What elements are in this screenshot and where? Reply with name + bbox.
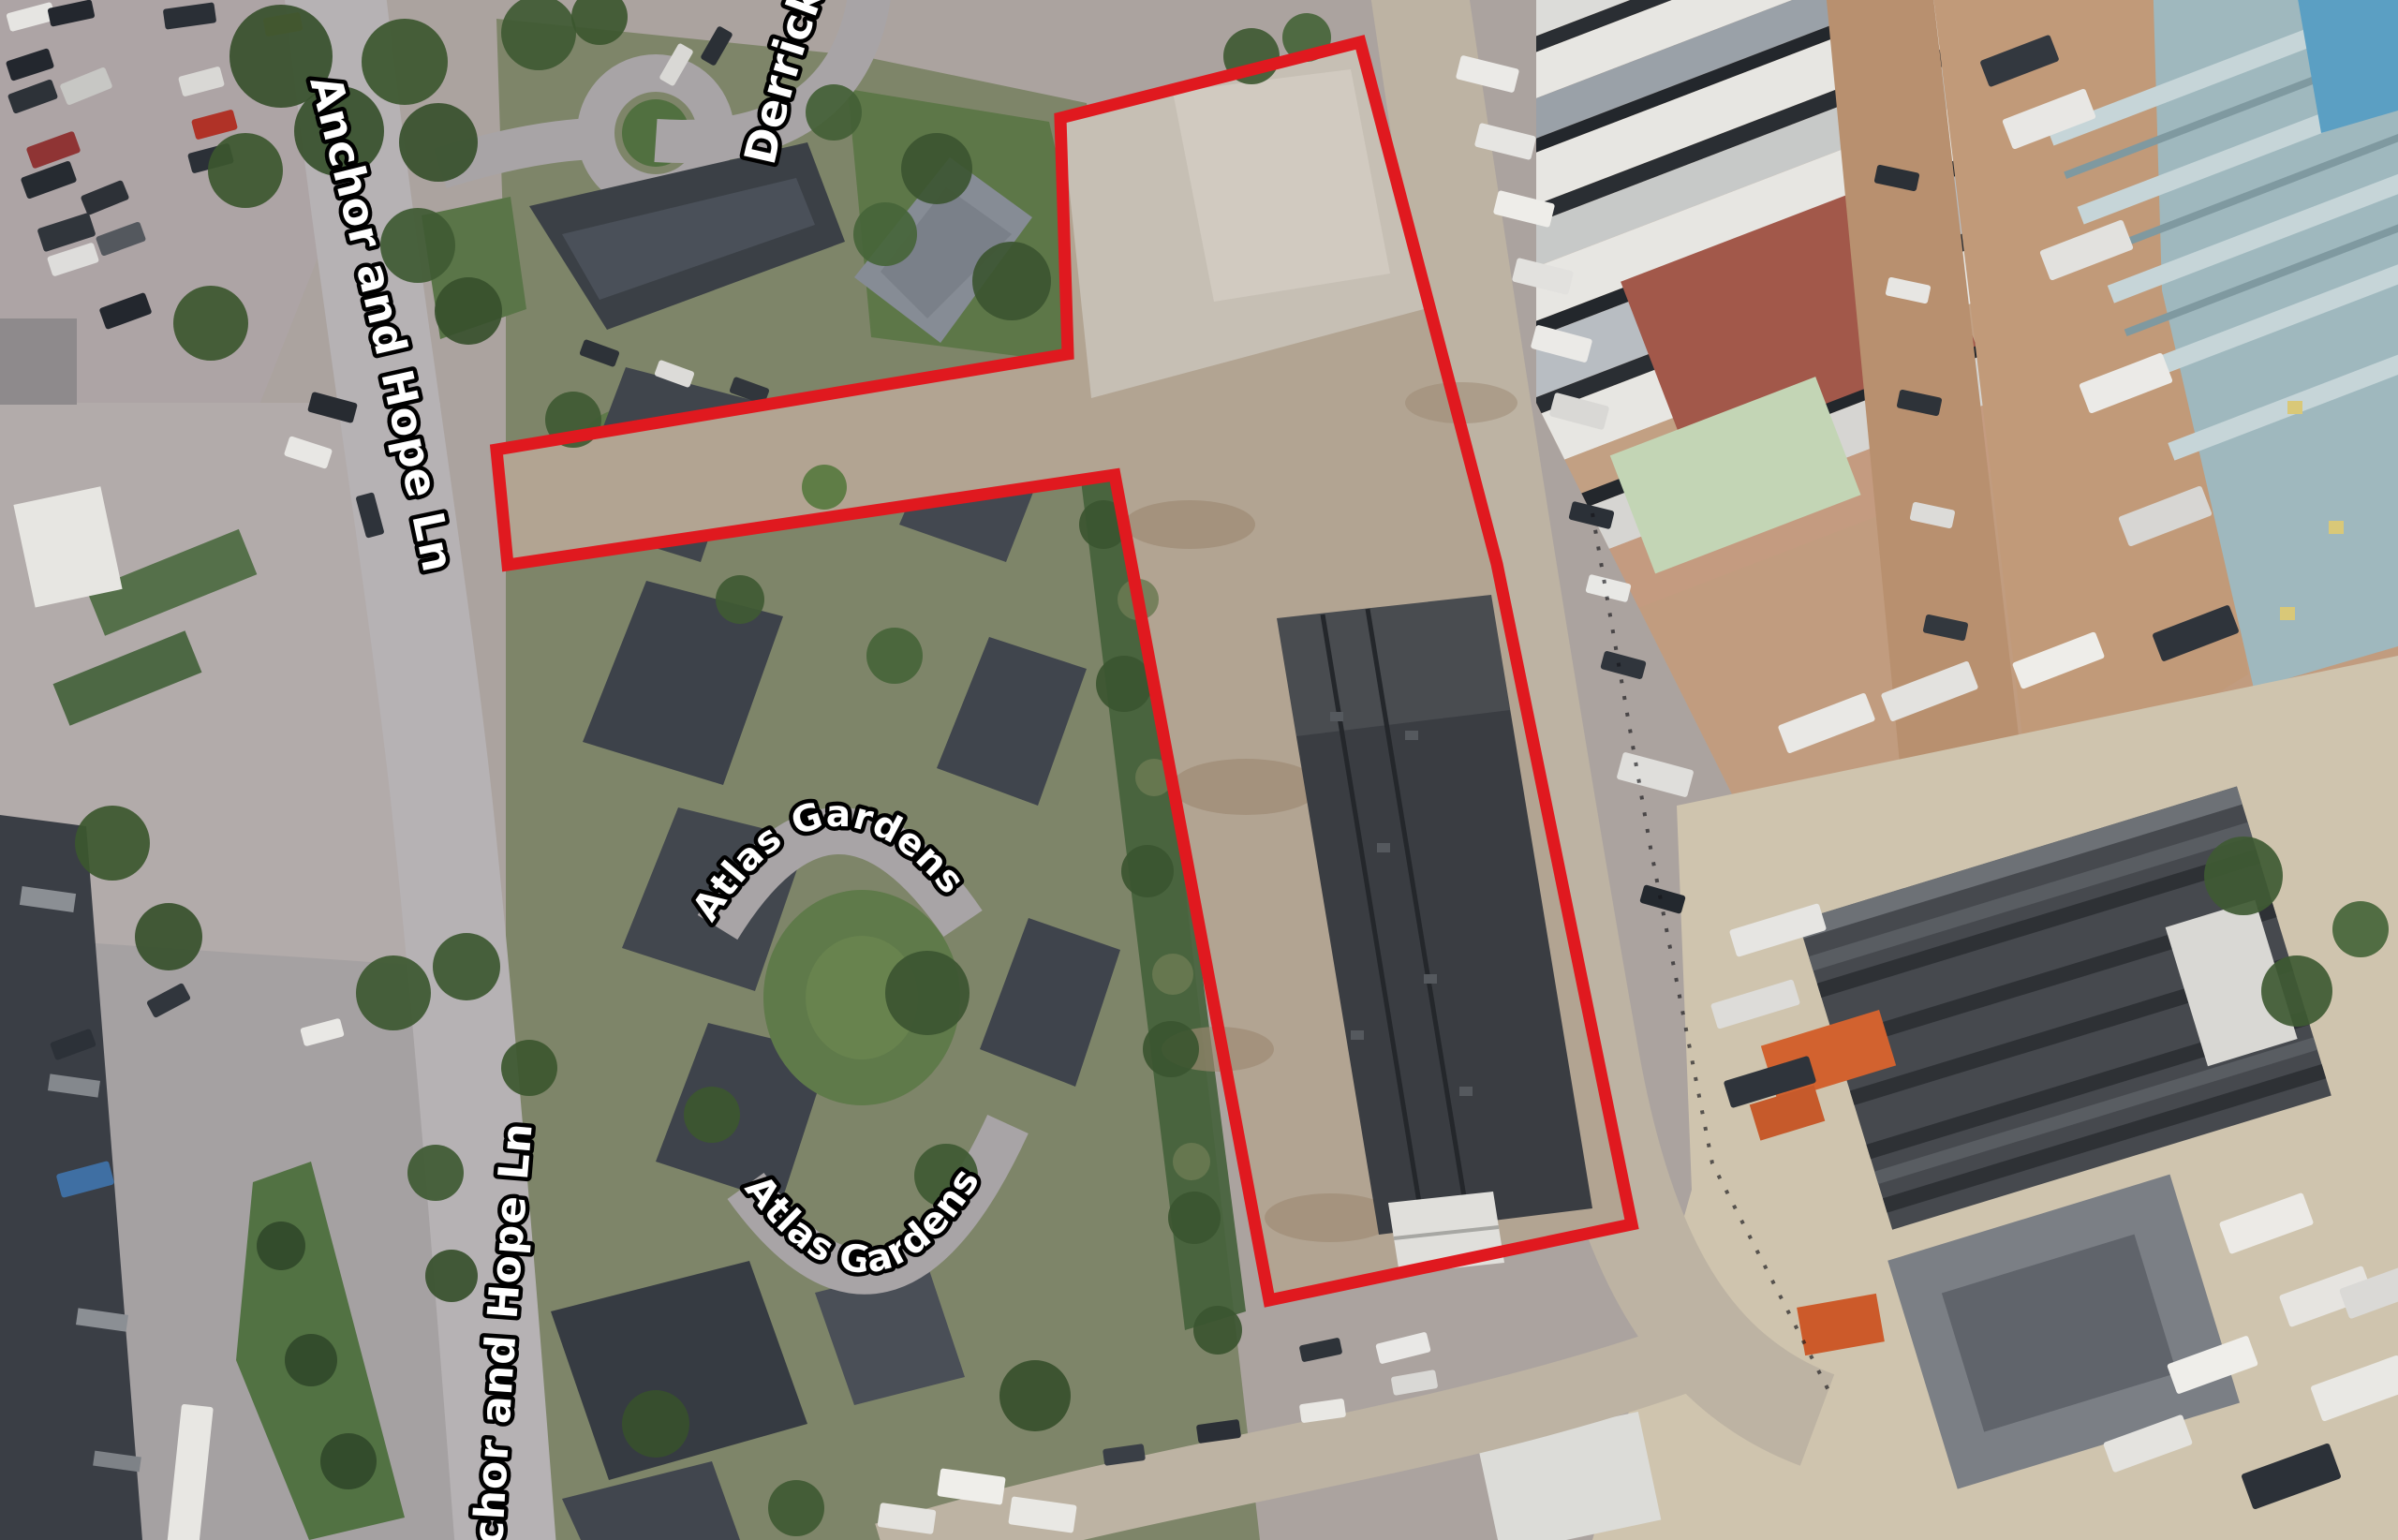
tree: [2204, 837, 2283, 915]
tree: [1096, 656, 1152, 712]
tree: [135, 903, 202, 970]
tree: [1143, 1021, 1199, 1077]
tree: [622, 1390, 689, 1458]
tree: [802, 465, 847, 510]
tree: [2332, 901, 2389, 957]
tree: [425, 1250, 478, 1302]
tree: [684, 1087, 740, 1143]
tree: [1168, 1192, 1221, 1244]
tree: [433, 933, 500, 1000]
tree: [257, 1222, 305, 1270]
map-viewport: Anchor and Hope Ln Derrick Atlas Gardens…: [0, 0, 2398, 1540]
aerial-map[interactable]: Anchor and Hope Ln Derrick Atlas Gardens…: [0, 0, 2398, 1540]
tree: [716, 575, 764, 624]
tree: [399, 103, 478, 182]
tree: [75, 806, 150, 881]
tree: [853, 202, 917, 266]
tree: [972, 242, 1051, 320]
tree: [1121, 845, 1174, 897]
tree: [362, 19, 448, 105]
tree: [999, 1360, 1071, 1431]
tree: [356, 955, 431, 1030]
tree: [208, 133, 283, 208]
small-shed: [0, 318, 77, 405]
tree: [901, 133, 972, 204]
tree: [866, 628, 923, 684]
tree: [173, 286, 248, 361]
tree: [435, 277, 502, 345]
tree: [1193, 1306, 1242, 1355]
tree: [407, 1145, 464, 1201]
tree: [768, 1480, 824, 1536]
tree: [806, 84, 862, 141]
tree: [2261, 955, 2332, 1027]
tree: [501, 1040, 557, 1096]
tree: [285, 1334, 337, 1386]
tree: [320, 1433, 377, 1489]
tree: [885, 951, 970, 1035]
